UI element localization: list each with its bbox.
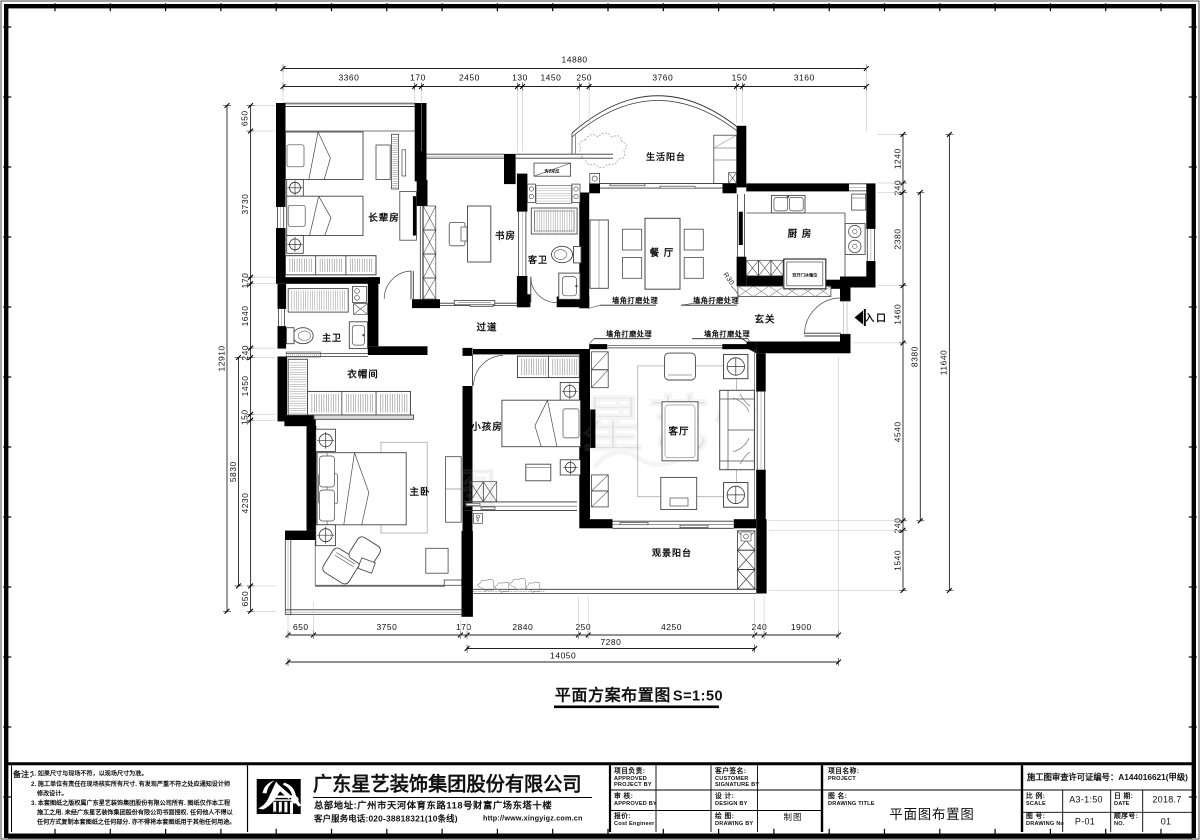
svg-text:170: 170 (410, 73, 426, 83)
svg-text:PROJECT BY: PROJECT BY (614, 782, 652, 788)
svg-text:客户签名:: 客户签名: (714, 766, 746, 775)
svg-text:240: 240 (893, 180, 903, 196)
svg-text:3. 本套图纸之版权属广东星艺装饰集团股份有限公司所有. 图: 3. 本套图纸之版权属广东星艺装饰集团股份有限公司所有. 图纸仅作本工程 (31, 799, 230, 807)
svg-text:DRAWING TITLE: DRAWING TITLE (828, 801, 875, 807)
svg-text:7280: 7280 (600, 637, 621, 647)
svg-text:1540: 1540 (893, 550, 903, 571)
svg-text:5830: 5830 (228, 461, 238, 482)
svg-text:入口: 入口 (865, 313, 888, 325)
svg-text:餐 厅: 餐 厅 (649, 247, 675, 259)
svg-text:14880: 14880 (562, 55, 588, 65)
svg-text:130: 130 (512, 73, 528, 83)
svg-text:SIGNATURE BY: SIGNATURE BY (715, 782, 759, 788)
svg-text:绘 图:: 绘 图: (715, 811, 734, 820)
svg-text:DESIGN BY: DESIGN BY (715, 801, 748, 807)
svg-text:P-01: P-01 (1075, 817, 1095, 827)
svg-text:比 例:: 比 例: (1026, 791, 1045, 800)
svg-text:8380: 8380 (910, 346, 920, 367)
svg-text:4540: 4540 (892, 421, 902, 442)
svg-text:图: 图 (456, 467, 496, 511)
svg-text:制图: 制图 (783, 812, 802, 822)
svg-text:11640: 11640 (939, 350, 949, 376)
svg-text:过道: 过道 (476, 322, 497, 334)
svg-text:14050: 14050 (550, 651, 576, 661)
svg-text:主卫: 主卫 (322, 332, 342, 343)
svg-text:2450: 2450 (459, 73, 480, 83)
svg-text:2840: 2840 (512, 622, 533, 632)
svg-text:1240: 1240 (893, 148, 903, 169)
svg-text:DRAWING No: DRAWING No (1026, 821, 1064, 827)
svg-text:650: 650 (240, 110, 250, 126)
svg-text:http://www.xingyigz.com.cn: http://www.xingyigz.com.cn (483, 814, 583, 823)
svg-text:250: 250 (576, 73, 592, 83)
svg-text:平面方案布置图: 平面方案布置图 (555, 686, 671, 705)
svg-text:3730: 3730 (240, 194, 250, 215)
svg-text:墙角打磨处理: 墙角打磨处理 (606, 330, 652, 339)
svg-text:170: 170 (240, 273, 250, 289)
svg-text:衣帽间: 衣帽间 (347, 369, 379, 381)
svg-text:PROJECT: PROJECT (828, 776, 856, 782)
svg-text:2018.7: 2018.7 (1152, 795, 1181, 805)
svg-text:日 期:: 日 期: (1114, 791, 1133, 800)
svg-text:SCALE: SCALE (1026, 801, 1046, 807)
svg-text:1450: 1450 (240, 375, 250, 396)
svg-text:XING YI: XING YI (270, 811, 284, 815)
svg-text:项目名称:: 项目名称: (828, 766, 859, 775)
svg-text:施工图审查许可证编号：A144016621(甲级): 施工图审查许可证编号：A144016621(甲级) (1027, 772, 1188, 782)
svg-text:修改设计。: 修改设计。 (36, 790, 67, 798)
svg-text:4230: 4230 (240, 493, 250, 514)
svg-text:1450: 1450 (540, 73, 561, 83)
svg-text:NO.: NO. (1114, 821, 1125, 827)
svg-text:双开门冰箱位: 双开门冰箱位 (792, 272, 818, 279)
svg-text:图 号:: 图 号: (1026, 811, 1045, 820)
svg-text:170: 170 (456, 622, 472, 632)
svg-text:平面图布置图: 平面图布置图 (889, 807, 974, 822)
svg-text:Cost Engineer: Cost Engineer (614, 821, 655, 827)
svg-text:9: 9 (476, 518, 479, 523)
svg-text:顺序号:: 顺序号: (1114, 811, 1138, 820)
svg-text:墙角打磨处理: 墙角打磨处理 (704, 330, 750, 339)
svg-text:图 名:: 图 名: (828, 791, 847, 800)
svg-text:3760: 3760 (652, 73, 673, 83)
svg-text:DATE: DATE (1114, 801, 1130, 807)
svg-text:报价:: 报价: (614, 811, 631, 820)
svg-text:2. 施工单位有责任在现场核实所有尺寸. 有发现严重不符之处: 2. 施工单位有责任在现场核实所有尺寸. 有发现严重不符之处应通知设计师 (31, 780, 230, 788)
svg-text:1460: 1460 (892, 304, 902, 325)
svg-text:1640: 1640 (240, 305, 250, 326)
svg-text:书房: 书房 (495, 230, 516, 242)
svg-text:玄关: 玄关 (754, 314, 775, 326)
svg-text:150: 150 (732, 73, 748, 83)
svg-text:墙角打磨处理: 墙角打磨处理 (612, 296, 658, 305)
svg-text:3160: 3160 (794, 73, 815, 83)
svg-text:观景阳台: 观景阳台 (652, 547, 692, 558)
svg-text:3360: 3360 (338, 73, 359, 83)
svg-text:1900: 1900 (791, 622, 812, 632)
svg-text:洗衣机位: 洗衣机位 (544, 168, 559, 173)
svg-text:总部地址:广州市天河体育东路118号财富广场东塔十楼: 总部地址:广州市天河体育东路118号财富广场东塔十楼 (314, 800, 552, 811)
svg-text:厨 房: 厨 房 (788, 228, 813, 240)
svg-text:240: 240 (752, 622, 768, 632)
svg-text:650: 650 (293, 622, 309, 632)
svg-text:3750: 3750 (376, 622, 397, 632)
svg-text:广东星艺装饰集团股份有限公司: 广东星艺装饰集团股份有限公司 (313, 773, 582, 796)
svg-text:审 核:: 审 核: (614, 791, 633, 800)
svg-text:生活阳台: 生活阳台 (646, 151, 686, 162)
svg-text:01: 01 (1161, 817, 1172, 827)
svg-text:650: 650 (240, 591, 250, 607)
svg-text:150: 150 (240, 409, 250, 425)
svg-text:APPROVED BY: APPROVED BY (614, 801, 657, 807)
svg-text:主卧: 主卧 (409, 486, 430, 498)
svg-text:项目负责:: 项目负责: (614, 766, 645, 775)
svg-text:客厅: 客厅 (667, 426, 689, 438)
svg-text:设 计:: 设 计: (715, 791, 734, 800)
svg-text:12910: 12910 (217, 345, 227, 371)
svg-text:240: 240 (240, 345, 250, 361)
svg-text:任何方式复制本套图纸之任何部分. 亦不得将本套图纸用于其他任: 任何方式复制本套图纸之任何部分. 亦不得将本套图纸用于其他任何用途。 (36, 818, 235, 826)
svg-text:S=1:50: S=1:50 (673, 689, 723, 705)
svg-text:4250: 4250 (661, 622, 682, 632)
svg-text:长辈房: 长辈房 (368, 212, 400, 224)
svg-text:DRAWING BY: DRAWING BY (715, 821, 753, 827)
svg-text:2380: 2380 (893, 229, 903, 250)
svg-text:240: 240 (893, 518, 903, 534)
svg-text:R30: R30 (721, 272, 735, 287)
svg-text:客户服务电话:020-38818321(10条线): 客户服务电话:020-38818321(10条线) (313, 814, 458, 824)
svg-text:250: 250 (575, 622, 591, 632)
svg-text:小孩房: 小孩房 (470, 421, 503, 433)
svg-text:A3-1:50: A3-1:50 (1069, 795, 1103, 805)
svg-text:施工之用. 未经广东星艺装饰集团股份有限公司书面授权. 任何: 施工之用. 未经广东星艺装饰集团股份有限公司书面授权. 任何他人不得以 (37, 809, 234, 817)
svg-text:客卫: 客卫 (527, 254, 548, 265)
svg-text:1. 如果尺寸与现场不符，以现场尺寸为准。: 1. 如果尺寸与现场不符，以现场尺寸为准。 (31, 770, 147, 778)
